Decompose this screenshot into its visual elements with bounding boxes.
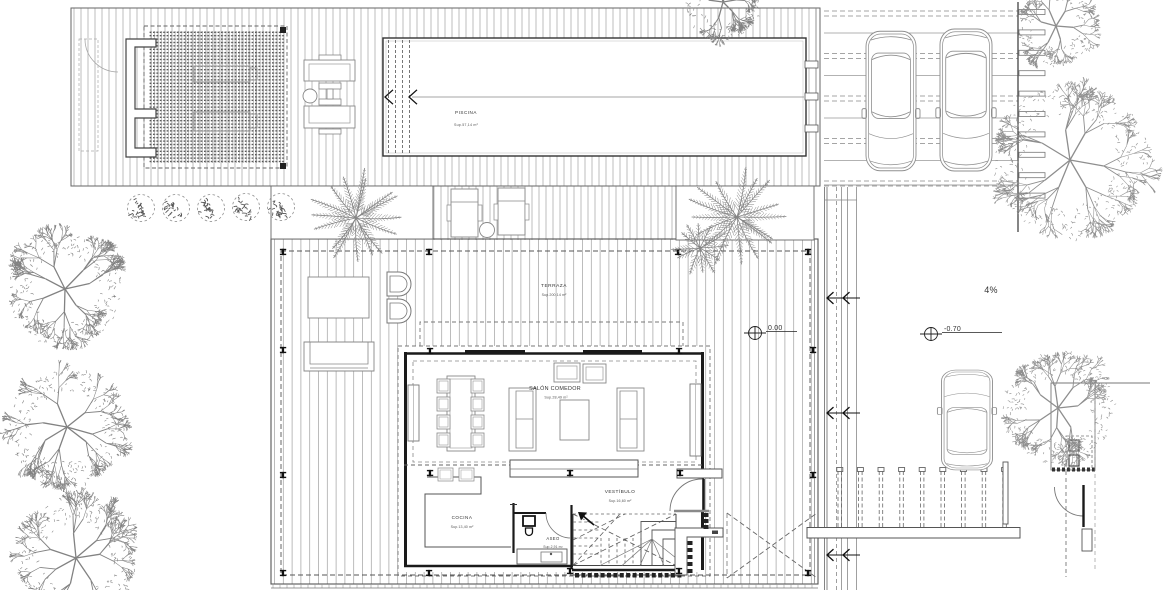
svg-text:Sup.16,60 m²: Sup.16,60 m² (609, 499, 632, 503)
svg-text:VESTÍBULO: VESTÍBULO (605, 488, 636, 495)
svg-text:Sup.2,91 m²: Sup.2,91 m² (543, 545, 563, 549)
svg-text:TERRAZA: TERRAZA (541, 283, 567, 289)
svg-text:Sup.13,40 m²: Sup.13,40 m² (451, 525, 474, 529)
svg-text:COCINA: COCINA (452, 515, 473, 520)
svg-text:Sup.57,14 m²: Sup.57,14 m² (454, 123, 479, 127)
svg-text:PISCINA: PISCINA (455, 110, 477, 115)
svg-text:-0.70: -0.70 (944, 326, 961, 333)
svg-text:Sup.200,14 m²: Sup.200,14 m² (542, 293, 568, 297)
svg-text:Sup.28,49 m²: Sup.28,49 m² (544, 396, 568, 400)
svg-text:SALÓN COMEDOR: SALÓN COMEDOR (529, 385, 581, 392)
svg-text:0.00: 0.00 (768, 325, 782, 332)
svg-text:4%: 4% (984, 285, 998, 295)
svg-text:ASEO: ASEO (546, 536, 560, 541)
